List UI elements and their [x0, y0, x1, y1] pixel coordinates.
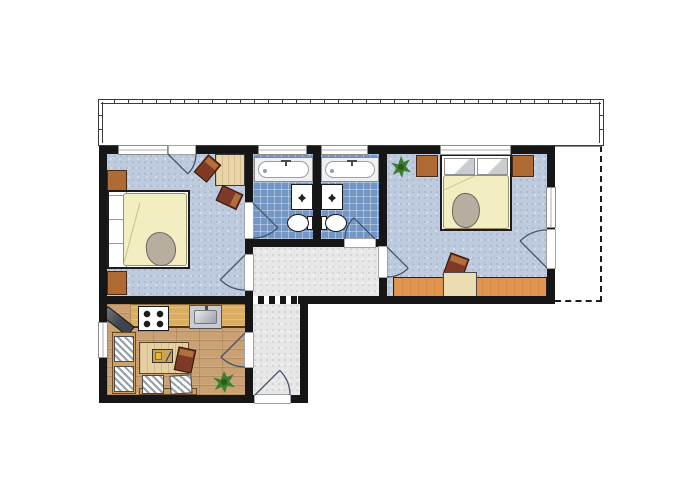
chair-back	[450, 255, 467, 266]
terrace-railing-right	[599, 102, 603, 143]
bench-cushion	[114, 336, 134, 362]
door-swing-bathroom-left	[249, 199, 285, 243]
balcony	[555, 146, 602, 302]
wall-hall-right	[300, 304, 308, 395]
window-kitchen-side	[98, 322, 108, 358]
wall-bottom-a	[99, 395, 255, 403]
sink	[291, 184, 313, 210]
bed-pillow	[477, 158, 508, 175]
drain-icon	[263, 169, 267, 173]
bathtub	[254, 157, 313, 182]
plant-core	[398, 164, 404, 171]
door-swing-bedroom-right	[383, 243, 417, 283]
plant-core	[221, 379, 228, 386]
wall-hall-threshold	[253, 296, 298, 304]
desk-left-bedroom	[215, 154, 245, 186]
nightstand	[107, 271, 127, 295]
wall-bottom-upper-right	[298, 296, 555, 304]
tap-arrow-icon	[301, 194, 310, 202]
bed-pillow	[444, 158, 475, 175]
window-bedroom-right-side	[546, 187, 556, 228]
window-bedroom-right-top	[440, 145, 511, 155]
cutting-board	[152, 349, 173, 363]
wall-bottom-upper-left	[99, 296, 253, 304]
nightstand	[512, 155, 534, 177]
window-bathroom-left	[258, 145, 307, 155]
chair-cushion	[169, 374, 192, 394]
tap-arrow-icon	[331, 194, 340, 202]
drain-icon	[330, 169, 334, 173]
faucet-icon	[205, 306, 208, 310]
terrace-railing-left	[99, 102, 103, 143]
food-item	[155, 352, 162, 360]
window-bathroom-right	[321, 145, 368, 155]
kitchen-sink-basin	[194, 310, 217, 324]
nightstand	[416, 155, 438, 177]
bench-cushion	[114, 366, 134, 392]
door-swing-balcony-right	[516, 226, 552, 272]
wall-left	[99, 146, 107, 304]
wall-kitchen-left-a	[99, 304, 107, 323]
sink	[321, 184, 343, 210]
door-swing-kitchen	[217, 329, 253, 373]
floor-plan	[0, 0, 700, 500]
door-swing-bedroom-left	[212, 251, 250, 295]
chair-back	[179, 349, 194, 358]
wall-bedroom-left-a	[245, 154, 253, 203]
blanket-fold	[124, 202, 140, 262]
window-bedroom-left-top	[118, 145, 168, 155]
bathtub	[321, 157, 379, 182]
faucet-icon	[351, 160, 353, 166]
door-swing-entrance	[251, 366, 295, 400]
hallway-floor-horizontal	[253, 247, 379, 296]
blanket-fold	[444, 176, 474, 190]
toilet	[287, 214, 309, 232]
terrace-railing-top	[101, 100, 601, 104]
knife-icon	[165, 351, 171, 361]
chair-cushion	[142, 375, 164, 394]
kitchen-sink	[189, 305, 222, 329]
door-swing-balcony-left	[164, 150, 204, 182]
stove	[138, 306, 169, 331]
sideboard-desk-center	[443, 272, 477, 297]
wall-between-bathrooms	[313, 154, 321, 239]
door-swing-bathroom-right	[341, 211, 381, 245]
terrace	[98, 99, 604, 146]
faucet-icon	[285, 160, 287, 166]
